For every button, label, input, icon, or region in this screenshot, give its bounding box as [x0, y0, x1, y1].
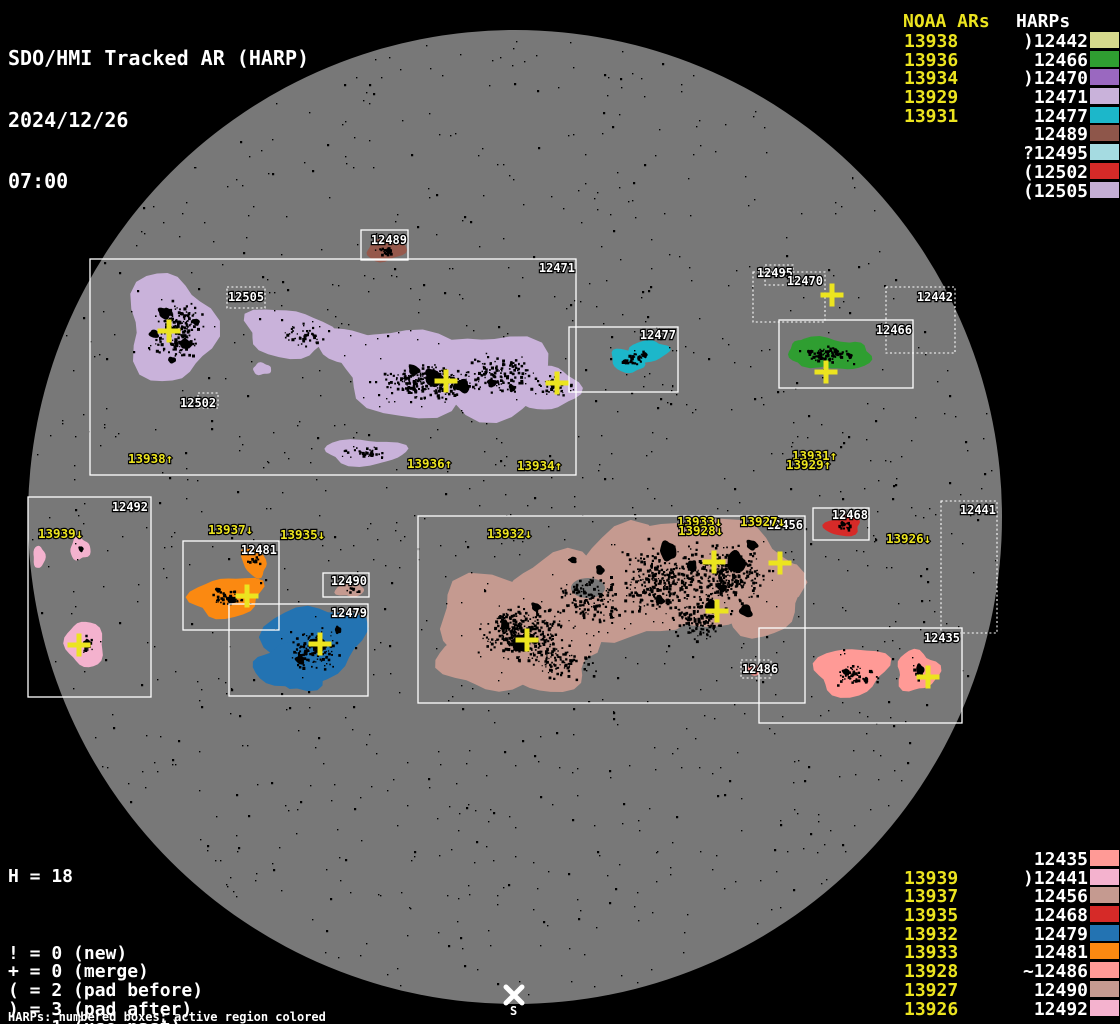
footer-notes: HARPs: numbered boxes; active region col… [8, 989, 427, 1024]
noaa-shifted-label: 13926↓ [886, 531, 931, 546]
harp-box-label: 12471 [539, 261, 575, 275]
time-label: 07:00 [8, 171, 309, 192]
harp-box-label: 12466 [876, 323, 912, 337]
app-title: SDO/HMI Tracked AR (HARP) [8, 48, 309, 69]
harp-count: H = 18 [8, 868, 214, 887]
harp-color-chip [1090, 182, 1119, 198]
harp-box-label: 12489 [371, 233, 407, 247]
harp-color-chip [1090, 925, 1119, 941]
harp-color-chip [1090, 887, 1119, 903]
harp-color-chip [1090, 906, 1119, 922]
harp-color-chip [1090, 144, 1119, 160]
legend-headers: NOAA ARs HARPs [903, 11, 1120, 31]
noaa-shifted-label: 13932↓ [487, 526, 532, 541]
noaa-shifted-label: 13939↓ [38, 526, 83, 541]
legend-row: 1392612492 [903, 999, 1120, 1018]
harp-color-chip [1090, 850, 1119, 866]
harp-box-label: 12477 [640, 328, 676, 342]
harp-box-label: 12441 [960, 503, 996, 517]
legend-row: (12505 [903, 181, 1120, 200]
noaa-shifted-label: 13938↑ [128, 451, 173, 466]
legend-row: 13938)12442 [903, 31, 1120, 50]
footer-line-1: HARPs: numbered boxes; active region col… [8, 1012, 427, 1024]
noaa-shifted-label: 13929↑ [786, 457, 831, 472]
south-label: S [510, 1004, 517, 1018]
harp-box-label: 12502 [180, 396, 216, 410]
legend-row: 1393512468 [903, 905, 1120, 924]
noaa-ars-header: NOAA ARs [903, 11, 990, 32]
noaa-shifted-label: 13927↓ [740, 514, 785, 529]
harp-box-label: 12481 [241, 543, 277, 557]
header: SDO/HMI Tracked AR (HARP) 2024/12/26 07:… [8, 7, 309, 233]
legend-row: 13928~12486 [903, 961, 1120, 980]
legend-row: 1393312481 [903, 942, 1120, 961]
harp-box-12486: 12486 [741, 660, 778, 678]
harp-number: (12505 [903, 181, 1088, 202]
harp-color-chip [1090, 943, 1119, 959]
solar-harp-chart: 1247112489125051250212477124951247012442… [0, 0, 1120, 1024]
legend-row: 1393712456 [903, 886, 1120, 905]
legend-row: (12502 [903, 162, 1120, 181]
legend-row: 1393612466 [903, 50, 1120, 69]
harp-box-label: 12505 [228, 290, 264, 304]
noaa-shifted-label: 13934↑ [517, 458, 562, 473]
harp-color-chip [1090, 1000, 1119, 1016]
legend-row: 1393112477 [903, 106, 1120, 125]
noaa-shifted-label: 13935↓ [280, 527, 325, 542]
noaa-shifted-label: 13936↑ [407, 456, 452, 471]
harp-color-chip [1090, 51, 1119, 67]
harps-header: HARPs [1016, 11, 1070, 32]
date-label: 2024/12/26 [8, 110, 309, 131]
legend-top-right: NOAA ARs HARPs 13938)1244213936124661393… [903, 11, 1120, 199]
legend-row: ?12495 [903, 143, 1120, 162]
harp-color-chip [1090, 125, 1119, 141]
harp-box-label: 12442 [917, 290, 953, 304]
noaa-shifted-label: 13937↓ [208, 522, 253, 537]
harp-color-chip [1090, 32, 1119, 48]
noaa-shifted-label: 13928↓ [678, 523, 723, 538]
legend-bottom-right: 1243513939)12441139371245613935124681393… [903, 849, 1120, 1017]
harp-color-chip [1090, 69, 1119, 85]
legend-row: 13934)12470 [903, 68, 1120, 87]
legend-row: 13939)12441 [903, 868, 1120, 887]
harp-color-chip [1090, 163, 1119, 179]
harp-box-12502: 12502 [180, 393, 218, 410]
legend-row: 12435 [903, 849, 1120, 868]
harp-color-chip [1090, 869, 1119, 885]
harp-box-label: 12479 [331, 606, 367, 620]
harp-box-label: 12468 [832, 508, 868, 522]
harp-color-chip [1090, 88, 1119, 104]
harp-color-chip [1090, 981, 1119, 997]
legend-row: 1392712490 [903, 980, 1120, 999]
harp-number: 12492 [903, 999, 1088, 1020]
legend-row: 1392912471 [903, 87, 1120, 106]
harp-box-label: 12470 [787, 274, 823, 288]
harp-box-label: 12435 [924, 631, 960, 645]
harp-box-label: 12486 [742, 662, 778, 676]
harp-box-label: 12492 [112, 500, 148, 514]
harp-color-chip [1090, 107, 1119, 123]
harp-color-chip [1090, 962, 1119, 978]
harp-box-label: 12490 [331, 574, 367, 588]
legend-row: 1393212479 [903, 924, 1120, 943]
legend-row: 12489 [903, 124, 1120, 143]
